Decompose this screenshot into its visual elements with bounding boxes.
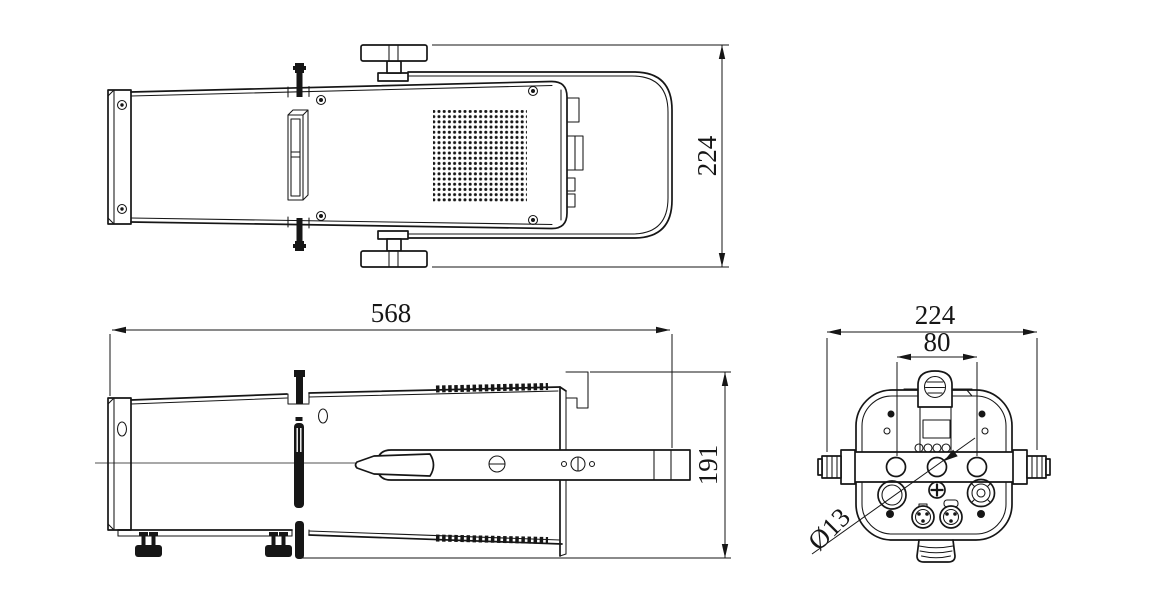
- indicator-dot-left: [886, 510, 894, 518]
- dimension-label-191: 191: [693, 445, 723, 486]
- dimension-label-diameter-13: Ø13: [802, 502, 856, 556]
- hole-front: [118, 422, 127, 436]
- yoke-arm-side: [356, 450, 691, 480]
- vent-grid: [433, 110, 527, 203]
- handle-grip: [356, 454, 434, 476]
- power-in-connector: [878, 481, 906, 509]
- twist-lock-connector: [968, 480, 995, 507]
- dimension-label-568: 568: [371, 298, 412, 328]
- menu-button: [924, 444, 932, 452]
- rear-latch-tabs: [567, 98, 583, 207]
- rear-view: 224 80 Ø13: [802, 300, 1050, 562]
- rear-step-bracket: [566, 372, 588, 408]
- locking-pin-bottom-side: [295, 521, 304, 559]
- drawing-canvas: 224: [0, 0, 1157, 600]
- yoke-knob-left: [818, 456, 841, 478]
- dimension-label-80: 80: [924, 327, 951, 357]
- top-view: 224: [108, 45, 729, 267]
- xlr-connector-left: [912, 504, 934, 528]
- yoke-knob-bottom: [361, 231, 427, 267]
- front-plate: [108, 90, 131, 224]
- front-plate-side: [108, 398, 131, 530]
- xlr-connector-right: [940, 500, 962, 528]
- side-view: 568 191: [95, 298, 731, 559]
- locking-pin-bottom: [288, 217, 309, 251]
- technical-drawing: 224: [0, 0, 1157, 600]
- menu-button: [915, 444, 923, 452]
- cable-gland: [917, 540, 955, 562]
- menu-button: [933, 444, 941, 452]
- locking-pin-top-side: [288, 370, 309, 404]
- accessory-slot: [288, 110, 308, 200]
- panel-fasteners: [884, 411, 988, 435]
- hole-mid: [319, 409, 328, 423]
- dimension-label-224-rear: 224: [915, 300, 956, 330]
- menu-button: [942, 444, 950, 452]
- display-window: [923, 420, 950, 438]
- focus-rod: [294, 417, 304, 508]
- yoke-knob-right: [1027, 456, 1050, 478]
- indicator-dot-right: [977, 510, 985, 518]
- ground-screw-icon: [929, 482, 945, 498]
- dimension-label-224-top: 224: [692, 135, 722, 176]
- hanging-bracket: [904, 371, 972, 452]
